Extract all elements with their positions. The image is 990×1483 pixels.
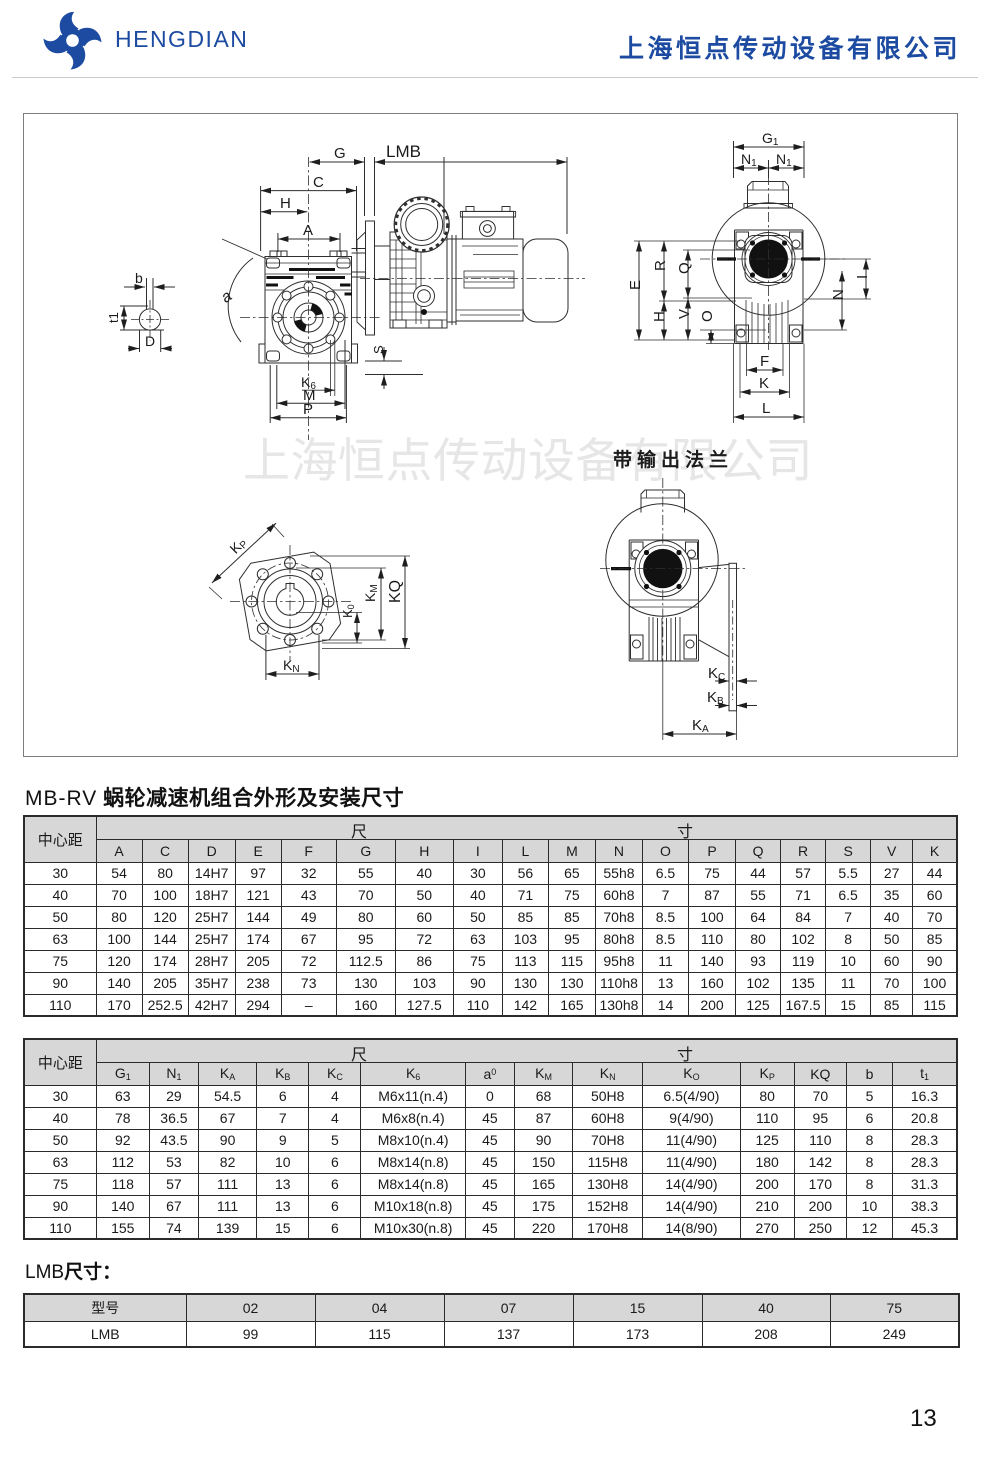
- svg-text:KC: KC: [708, 665, 725, 683]
- svg-text:A: A: [303, 222, 313, 239]
- svg-text:S: S: [371, 345, 386, 354]
- svg-text:KB: KB: [707, 689, 724, 707]
- svg-text:D: D: [145, 333, 155, 349]
- svg-text:N: N: [830, 289, 847, 300]
- svg-text:b: b: [135, 270, 143, 286]
- svg-text:I: I: [854, 275, 871, 279]
- svg-text:a: a: [218, 288, 235, 307]
- svg-text:E: E: [627, 280, 644, 290]
- svg-text:KP: KP: [226, 534, 250, 558]
- svg-text:V: V: [676, 309, 693, 319]
- svg-text:C: C: [313, 174, 324, 191]
- svg-text:R: R: [652, 260, 669, 271]
- svg-text:Q: Q: [676, 262, 693, 274]
- svg-text:带输出法兰: 带输出法兰: [613, 448, 733, 471]
- svg-text:t1: t1: [106, 312, 121, 323]
- svg-text:P: P: [303, 401, 313, 418]
- svg-text:H: H: [280, 195, 291, 212]
- svg-text:N1: N1: [776, 151, 792, 169]
- svg-text:K: K: [759, 375, 769, 392]
- svg-text:KA: KA: [692, 717, 709, 735]
- svg-text:G1: G1: [762, 130, 779, 148]
- svg-text:N1: N1: [741, 151, 757, 169]
- svg-text:KQ: KQ: [387, 580, 404, 603]
- svg-text:O: O: [699, 310, 716, 322]
- svg-text:KN: KN: [283, 657, 300, 675]
- svg-text:K0: K0: [340, 604, 356, 618]
- svg-text:H: H: [651, 311, 668, 322]
- svg-text:G: G: [334, 145, 346, 162]
- svg-text:F: F: [760, 353, 769, 370]
- svg-text:LMB: LMB: [386, 142, 421, 161]
- svg-text:L: L: [762, 400, 770, 417]
- svg-text:KM: KM: [362, 584, 380, 602]
